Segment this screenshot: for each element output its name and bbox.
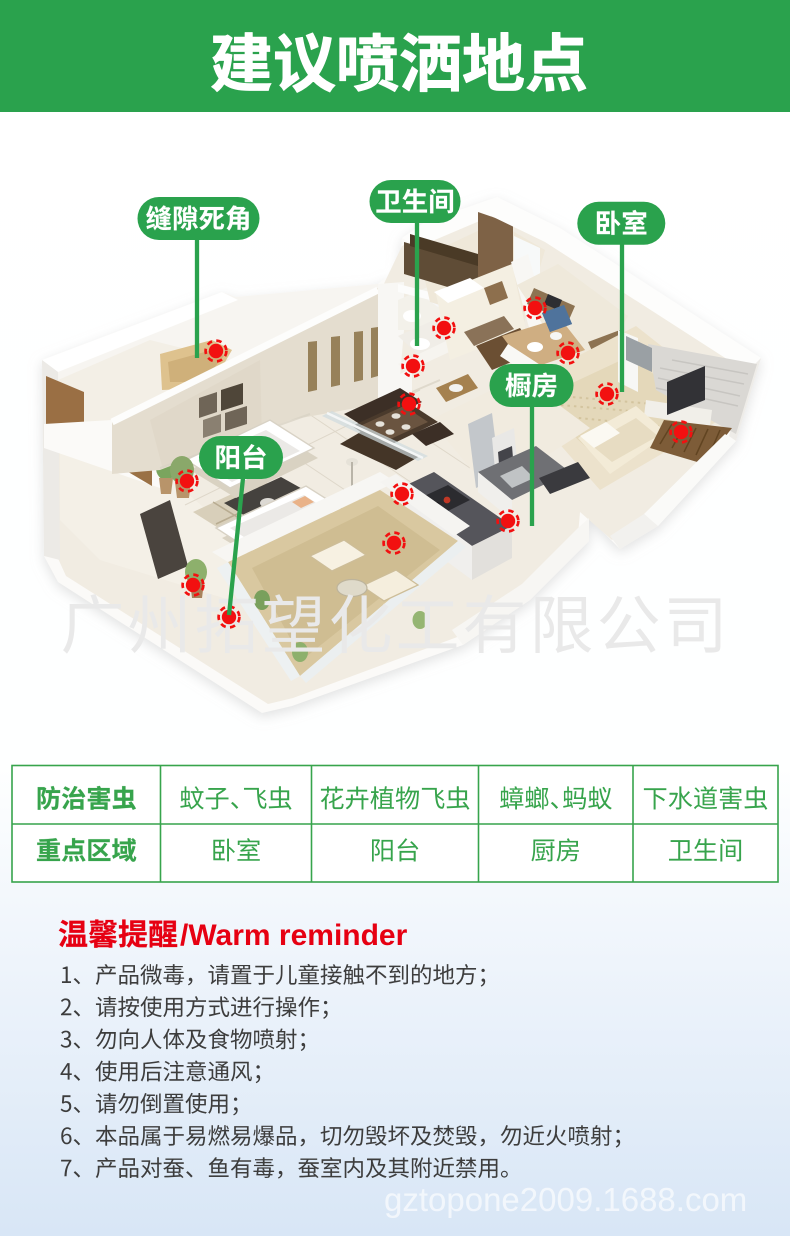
svg-text:/Warm reminder: /Warm reminder (180, 919, 408, 952)
svg-text:gztopone2009.1688.com: gztopone2009.1688.com (384, 1181, 747, 1218)
